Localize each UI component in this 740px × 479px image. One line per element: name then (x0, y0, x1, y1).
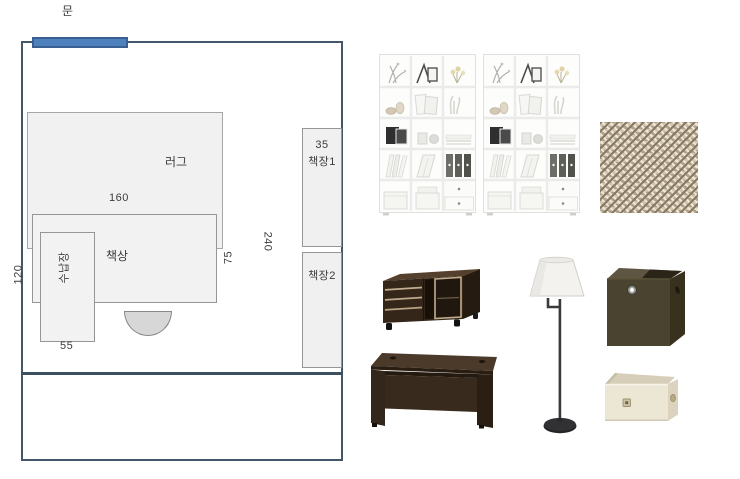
room-plan-page: 문 러그 160 책상 수납장 55 120 75 240 35 책장1 책장2 (0, 0, 740, 479)
white-bookshelf-pair-image (379, 54, 581, 217)
door-shape (32, 37, 128, 48)
rug-texture-swatch-image (600, 122, 698, 213)
storage-label: 수납장 (59, 249, 72, 287)
bookshelf-depth-dimension: 35 (302, 139, 342, 152)
bookshelf1-label: 책장1 (300, 156, 344, 169)
left-wall-dimension: 120 (13, 257, 26, 293)
cream-box-image (598, 369, 683, 427)
door-label: 문 (62, 4, 73, 18)
storage-width-dimension: 55 (60, 340, 73, 353)
bookshelf2-label: 책장2 (300, 270, 344, 283)
desk-depth-dimension: 75 (223, 243, 236, 273)
rug-width-dimension: 160 (109, 192, 129, 205)
office-desk-image (369, 350, 504, 429)
tv-cabinet-image (377, 266, 485, 340)
rug-label: 러그 (165, 155, 187, 169)
floor-lamp-image (528, 250, 590, 446)
room-divider-wall (21, 372, 343, 375)
storage-cube-image (598, 262, 690, 350)
desk-label: 책상 (106, 249, 128, 263)
right-wall-dimension: 240 (261, 224, 274, 260)
